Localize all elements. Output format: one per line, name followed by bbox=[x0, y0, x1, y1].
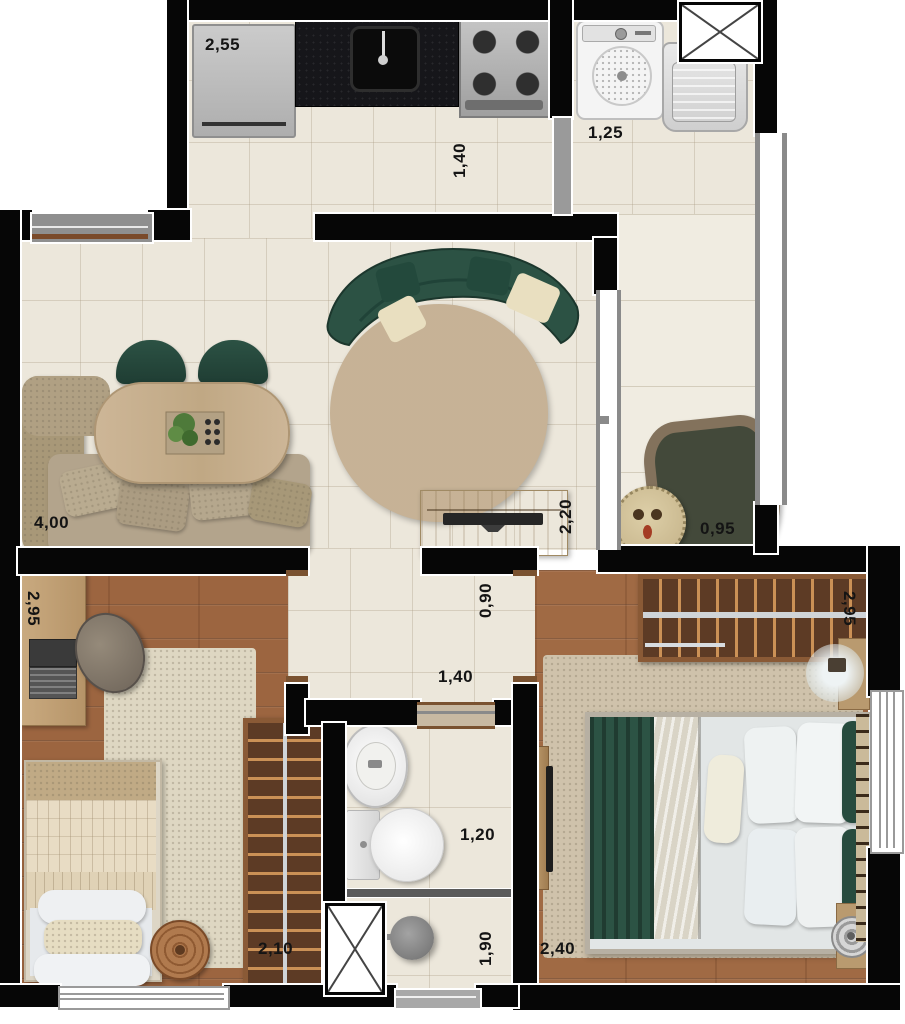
bedroom2-door-jamb bbox=[513, 570, 537, 576]
balcony-sliding-door bbox=[596, 290, 621, 550]
shower-glass-partition bbox=[345, 888, 512, 898]
stove-cooktop bbox=[459, 14, 553, 118]
round-stool bbox=[150, 920, 210, 980]
dim-tv-stand: 2,20 bbox=[557, 499, 574, 534]
duct-shaft-bathroom bbox=[325, 903, 385, 995]
duct-shaft-top bbox=[679, 2, 761, 62]
wall-bedroom2-left bbox=[513, 684, 537, 1008]
bed2-pillow bbox=[703, 754, 745, 844]
wall-bottom-1 bbox=[0, 985, 60, 1007]
bedroom2-tv-icon bbox=[546, 766, 553, 872]
oval-dining-table bbox=[94, 382, 290, 484]
tv-stand bbox=[420, 490, 568, 556]
wall-bedroom1-top bbox=[18, 548, 308, 574]
washer-knob-icon bbox=[615, 28, 627, 40]
dim-fridge-width: 2,55 bbox=[205, 36, 240, 53]
bedroom1-window bbox=[58, 986, 230, 1010]
dim-shower-width: 1,90 bbox=[477, 931, 494, 966]
laptop-icon bbox=[29, 639, 75, 701]
kitchen-laundry-door bbox=[552, 116, 573, 216]
tv-icon bbox=[443, 513, 543, 525]
bathroom-window bbox=[394, 988, 482, 1010]
bedroom2-door-jamb bbox=[513, 676, 537, 682]
dim-hall-length: 1,40 bbox=[438, 668, 473, 685]
tank-basin bbox=[672, 62, 736, 122]
dim-hall-width: 0,90 bbox=[477, 583, 494, 618]
curved-green-sofa bbox=[320, 243, 585, 355]
balcony-glass-railing bbox=[755, 133, 787, 505]
washer-drum-icon bbox=[592, 46, 652, 106]
bedroom1-door-jamb bbox=[286, 676, 308, 682]
washbasin bbox=[342, 724, 408, 808]
floor-plan: 2,55 1,40 1,25 4,00 2,20 0,95 0,90 1,40 … bbox=[0, 0, 905, 1024]
single-bed bbox=[24, 760, 162, 982]
bed1-blanket bbox=[26, 762, 156, 802]
bed1-pillow bbox=[44, 920, 142, 956]
bed1-pillow bbox=[34, 954, 150, 986]
wall-bedroom2-bottom bbox=[513, 985, 900, 1010]
dim-bedroom1-wardrobe: 2,10 bbox=[258, 940, 293, 957]
wall-left bbox=[0, 210, 20, 1007]
bed2-green-drape bbox=[590, 717, 658, 939]
dim-living-width: 4,00 bbox=[34, 514, 69, 531]
dim-laundry-width: 1,25 bbox=[588, 124, 623, 141]
wall-living-divider bbox=[315, 214, 617, 240]
room-hallway bbox=[288, 548, 538, 723]
bathroom-door-threshold bbox=[417, 702, 495, 729]
washer-control-panel bbox=[582, 25, 656, 42]
wall-top bbox=[167, 0, 687, 20]
washing-machine bbox=[576, 20, 664, 120]
double-bed bbox=[585, 712, 878, 954]
stove-front-strip bbox=[465, 100, 543, 110]
dim-bedroom2-width: 2,95 bbox=[841, 591, 858, 626]
shower-head-icon bbox=[390, 916, 434, 960]
wall-kitchen-laundry bbox=[550, 0, 572, 118]
bed2-pillow bbox=[744, 726, 801, 825]
wall-bathroom-top bbox=[306, 700, 420, 725]
faucet-base-icon bbox=[378, 55, 388, 65]
faucet-icon bbox=[382, 31, 385, 57]
dim-bathroom-width: 1,20 bbox=[460, 826, 495, 843]
washer-buttons bbox=[635, 31, 651, 35]
living-window bbox=[30, 212, 154, 244]
bed1-quilt bbox=[26, 800, 156, 876]
toilet-bowl bbox=[370, 808, 444, 882]
wall-bottom-3 bbox=[476, 985, 518, 1007]
wall-bedroom2-right-upper bbox=[868, 546, 900, 696]
bed1-pillow bbox=[38, 890, 146, 924]
wall-living-divider-return bbox=[594, 238, 617, 294]
wall-balcony-corner bbox=[755, 503, 777, 553]
wall-kitchen-left bbox=[167, 0, 187, 214]
tv-base bbox=[481, 525, 505, 532]
bed2-pillow bbox=[744, 828, 801, 927]
lamp-icon bbox=[828, 658, 846, 672]
dim-bedroom2-length: 2,40 bbox=[540, 940, 575, 957]
bed2-gauze bbox=[654, 717, 700, 939]
toilet bbox=[346, 808, 442, 882]
refrigerator-handle bbox=[202, 122, 286, 126]
table-decor bbox=[96, 384, 288, 482]
nightstand-lamp-glow bbox=[806, 644, 864, 702]
basin-faucet-icon bbox=[368, 760, 382, 768]
bedroom2-window bbox=[870, 690, 904, 854]
wall-window-pier bbox=[148, 210, 190, 240]
wall-bedroom2-top bbox=[598, 546, 890, 572]
wall-bedroom1-right bbox=[286, 684, 308, 734]
bedroom1-door-jamb bbox=[286, 570, 308, 576]
dim-bedroom1-width: 2,95 bbox=[25, 591, 42, 626]
dim-kitchen-depth: 1,40 bbox=[451, 143, 468, 178]
kitchen-sink bbox=[350, 26, 420, 92]
tv-shelf-line bbox=[427, 509, 561, 511]
dim-balcony-width: 0,95 bbox=[700, 520, 735, 537]
bed2-duvet-fold bbox=[698, 717, 701, 939]
wardrobe-handle bbox=[645, 643, 725, 647]
